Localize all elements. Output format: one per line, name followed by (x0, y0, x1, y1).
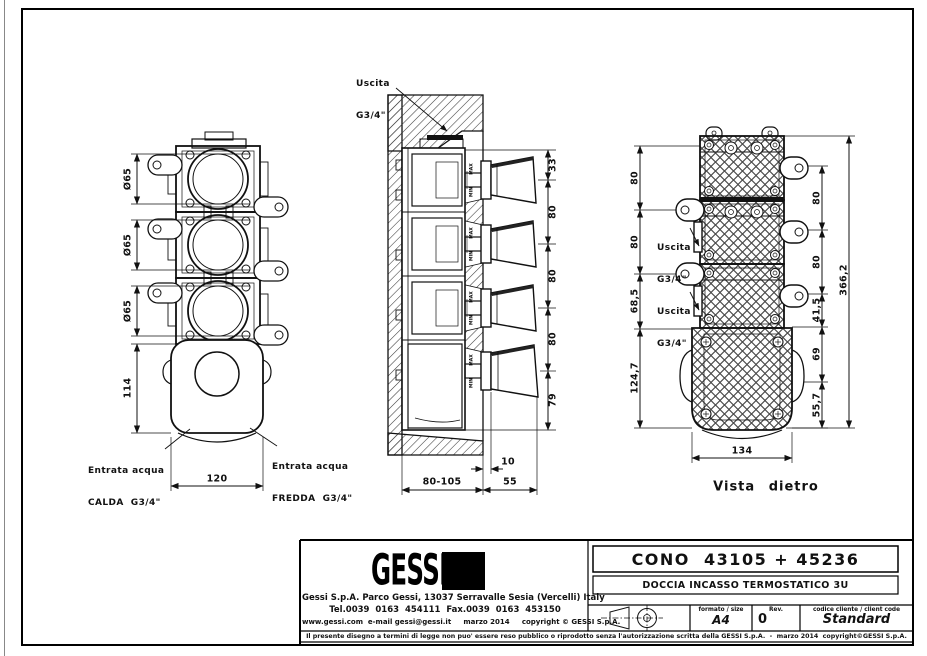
dim-rear-right-69: 69 (812, 347, 823, 361)
dim-section-10: 10 (501, 457, 515, 468)
company-web: www.gessi.com e-mail gessi@gessi.it marz… (302, 618, 588, 626)
inlet-cold-line1: Entrata acqua (272, 462, 353, 473)
format-value: A4 (690, 613, 752, 627)
product-description: DOCCIA INCASSO TERMOSTATICO 3U (593, 580, 898, 591)
product-code: CONO 43105 + 45236 (593, 550, 898, 569)
max-label-3: MAX (470, 291, 475, 302)
outlet-rear2-line2: G3/4" (657, 339, 691, 350)
dim-rear-right-415: 41,5 (812, 298, 823, 323)
client-code-value: Standard (800, 612, 913, 627)
dim-section-33: 33 (548, 158, 559, 172)
company-address: Gessi S.p.A. Parco Gessi, 13037 Serraval… (302, 593, 588, 603)
inlet-hot-line2: CALDA G3/4" (88, 498, 164, 509)
gessi-logo-block (442, 552, 485, 590)
legal-disclaimer: Il presente disegno a termini di legge n… (300, 633, 913, 640)
dim-rear-right-80b: 80 (812, 255, 823, 269)
dim-rear-width-134: 134 (732, 446, 753, 457)
max-label-2: MAX (470, 227, 475, 238)
outlet-label-rear-1: Uscita G3/4" (657, 222, 691, 296)
dim-front-height-114: 114 (123, 378, 134, 399)
gessi-logo-text: GESSI (371, 549, 448, 593)
dim-section-80c: 80 (548, 332, 559, 346)
outlet-label-rear-2: Uscita G3/4" (657, 286, 691, 360)
dim-section-55: 55 (503, 477, 517, 488)
dim-section-depth: 80-105 (423, 477, 462, 488)
inlet-hot-line1: Entrata acqua (88, 466, 164, 477)
dim-section-80b: 80 (548, 269, 559, 283)
inlet-hot-label: Entrata acqua CALDA G3/4" (88, 445, 164, 519)
min-label-4: MIN (470, 378, 475, 388)
outlet-top-line2: G3/4" (356, 111, 390, 122)
dim-front-diameter-3: Ø65 (123, 300, 134, 322)
dim-rear-left-80a: 80 (630, 171, 641, 185)
max-label-1: MAX (470, 163, 475, 174)
dim-section-79: 79 (548, 393, 559, 407)
technical-drawing-sheet: Ø65 Ø65 Ø65 114 120 Entrata acqua CALDA … (0, 0, 927, 656)
min-label-2: MIN (470, 251, 475, 261)
outlet-rear1-line2: G3/4" (657, 275, 691, 286)
dim-front-width-120: 120 (207, 474, 228, 485)
dim-rear-right-557: 55,7 (812, 393, 823, 418)
company-phone: Tel.0039 0163 454111 Fax.0039 0163 45315… (302, 605, 588, 615)
min-label-3: MIN (470, 315, 475, 325)
dim-rear-left-80b: 80 (630, 235, 641, 249)
rear-view-caption: Vista dietro (713, 480, 819, 495)
outlet-label-top: Uscita G3/4" (356, 58, 390, 132)
min-label-1: MIN (470, 187, 475, 197)
outlet-rear2-line1: Uscita (657, 307, 691, 318)
dim-rear-left-685: 68,5 (630, 289, 641, 314)
dim-rear-total: 366,2 (839, 264, 850, 296)
max-label-4: MAX (470, 354, 475, 365)
dim-section-80a: 80 (548, 205, 559, 219)
dim-front-diameter-1: Ø65 (123, 168, 134, 190)
rev-value: 0 (758, 612, 767, 627)
outlet-top-line1: Uscita (356, 79, 390, 90)
outlet-rear1-line1: Uscita (657, 243, 691, 254)
dim-rear-right-80a: 80 (812, 191, 823, 205)
dim-rear-left-1247: 124,7 (630, 362, 641, 394)
inlet-cold-label: Entrata acqua FREDDA G3/4" (272, 441, 353, 515)
front-view-linework (131, 132, 288, 491)
inlet-cold-line2: FREDDA G3/4" (272, 494, 353, 505)
dim-front-diameter-2: Ø65 (123, 234, 134, 256)
